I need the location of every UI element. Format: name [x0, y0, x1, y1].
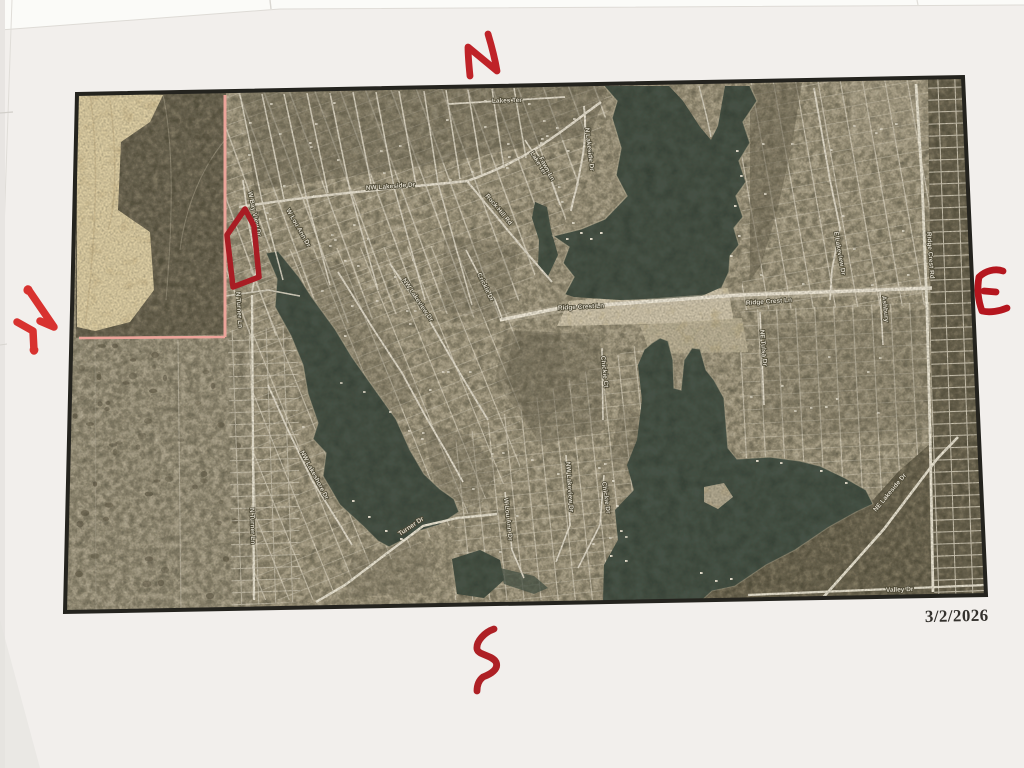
svg-text:3/2/2026: 3/2/2026	[925, 606, 989, 626]
